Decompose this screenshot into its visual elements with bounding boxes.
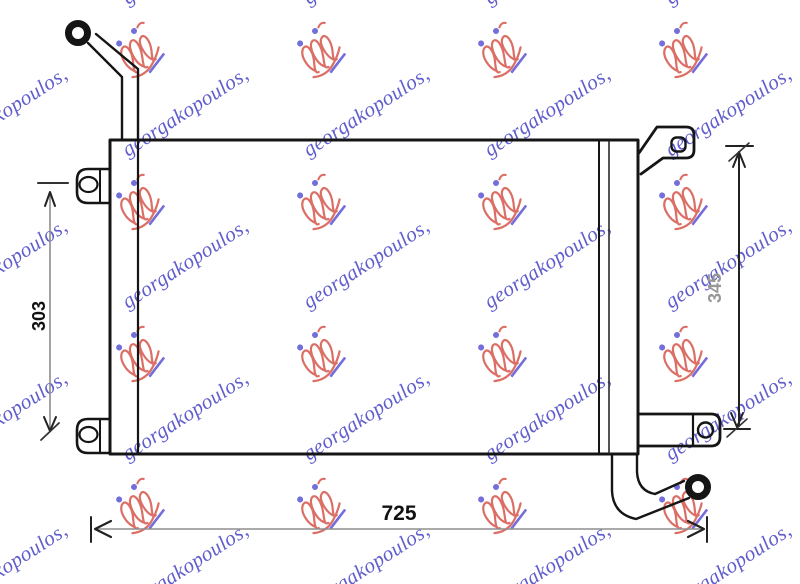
- dim-height-right-label: 345: [705, 273, 725, 303]
- dimension-width: 725: [91, 502, 707, 542]
- radiator-drawing: 303 725 345: [0, 0, 800, 584]
- dim-height-left-label: 303: [29, 301, 49, 331]
- inlet-pipe: [69, 24, 139, 141]
- bracket-hole: [672, 138, 686, 152]
- diagram-canvas: georgakopoulos,georgakopoulos,georgakopo…: [0, 0, 800, 584]
- mounting-bracket-bottom-left: [77, 419, 110, 453]
- bracket-hole: [80, 427, 98, 442]
- mounting-bracket-top-left: [77, 169, 110, 203]
- pipe-fitting-ring: [689, 478, 708, 497]
- outlet-pipe: [612, 455, 708, 519]
- bracket-hole: [80, 177, 98, 192]
- dim-width-label: 725: [381, 502, 416, 525]
- dimension-height-left: 303: [29, 183, 68, 440]
- dimension-height-right: 345: [705, 143, 753, 437]
- bracket-hole: [698, 423, 713, 438]
- condenser-body-outline: [110, 140, 638, 454]
- pipe-fitting-ring: [69, 24, 88, 43]
- mounting-bracket-bottom-right: [638, 414, 720, 446]
- mounting-bracket-top-right: [639, 127, 694, 174]
